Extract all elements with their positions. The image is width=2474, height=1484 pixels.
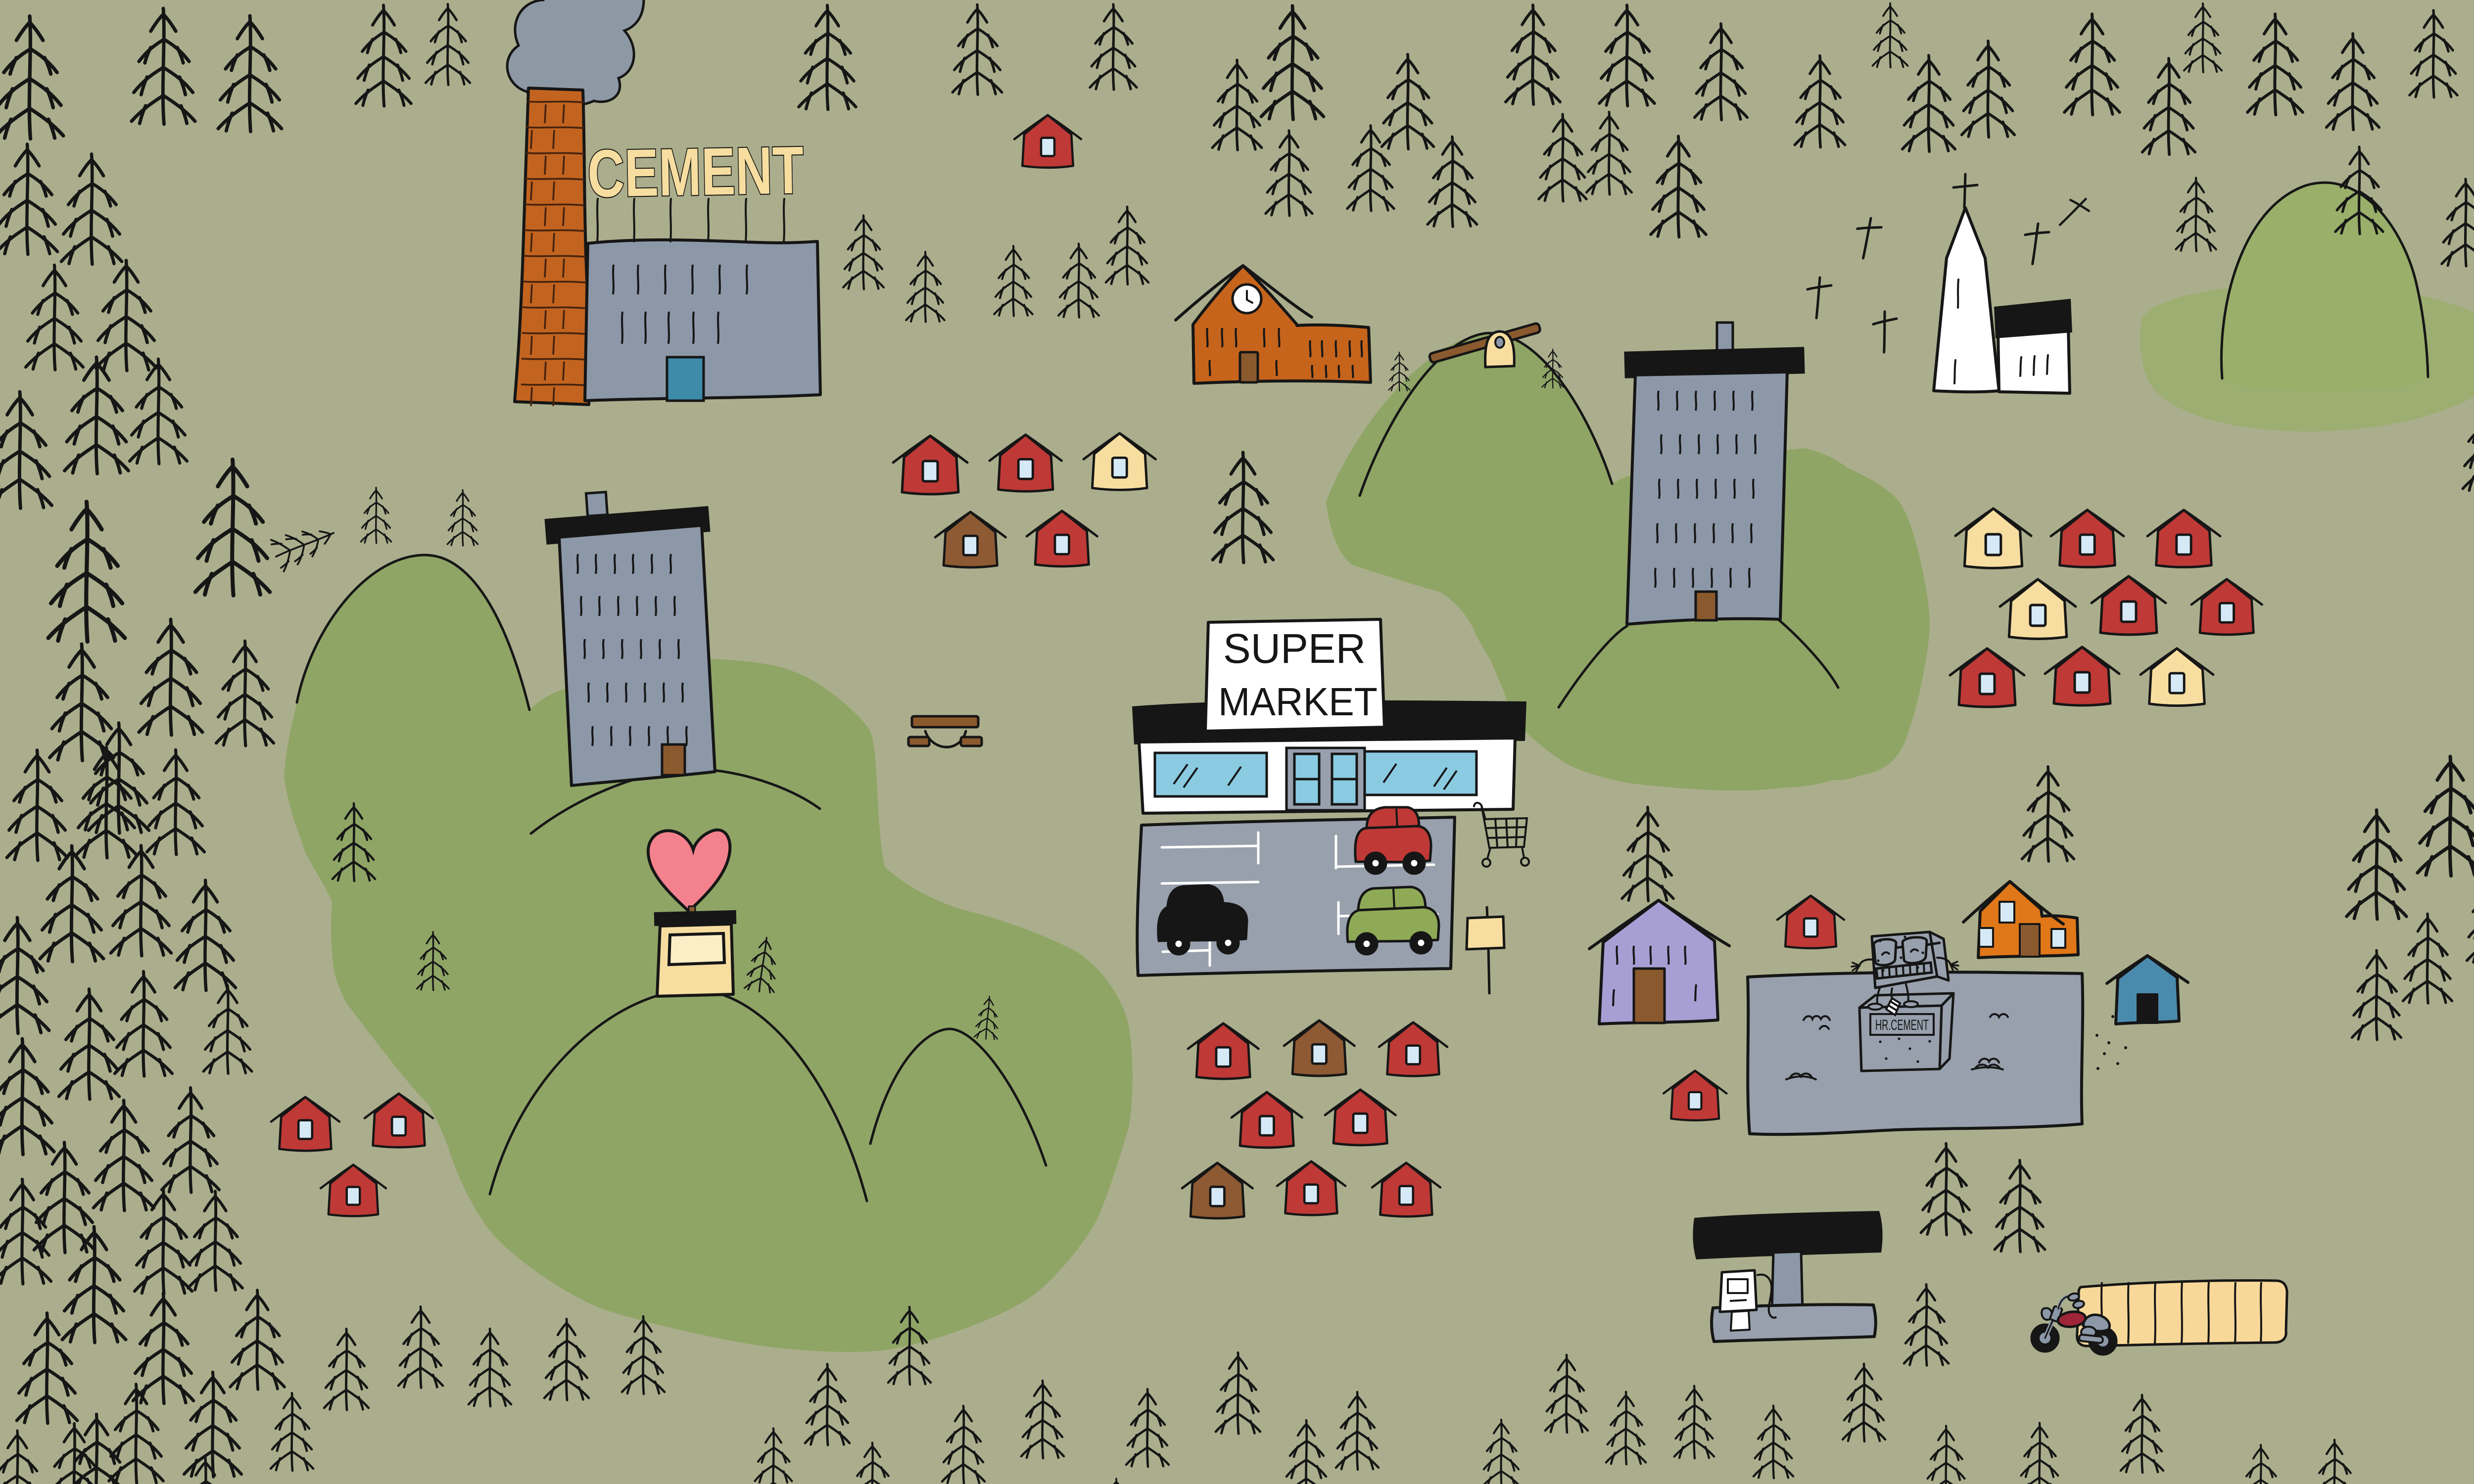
svg-text:SUPER: SUPER xyxy=(1223,625,1366,672)
svg-text:CEMENT: CEMENT xyxy=(587,132,805,211)
svg-text:HR.CEMENT: HR.CEMENT xyxy=(1875,1017,1929,1033)
svg-text:MARKET: MARKET xyxy=(1218,680,1378,724)
